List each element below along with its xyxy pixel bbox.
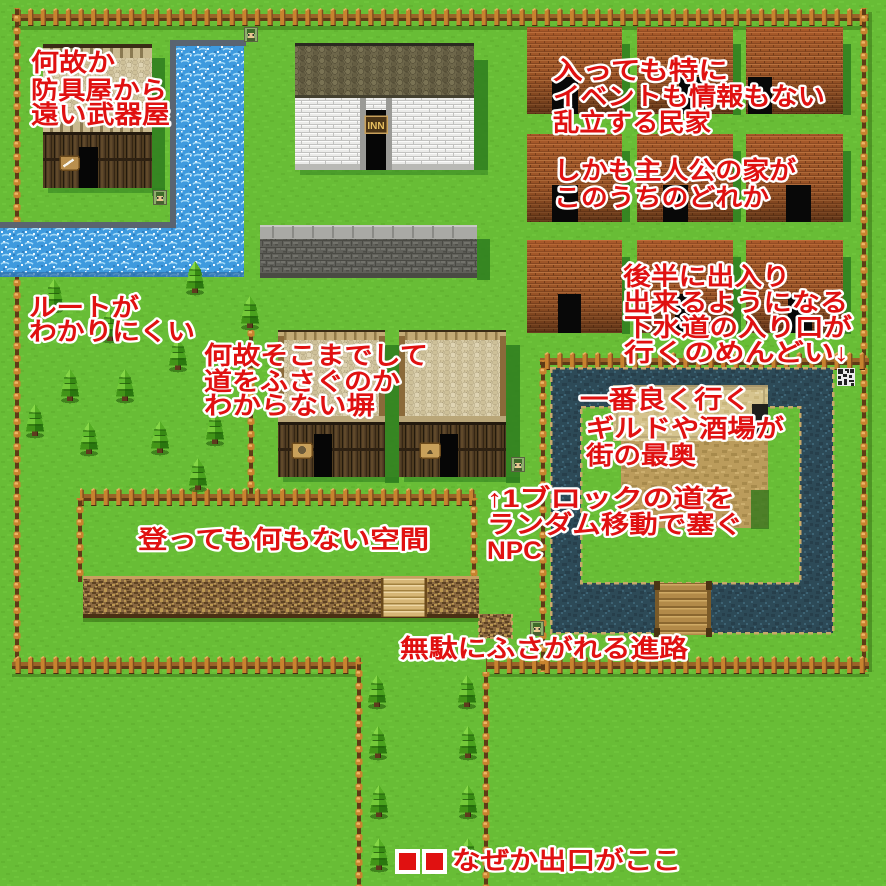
svg-text:このうちのどれか: このうちのどれか [554,184,769,212]
svg-text:遠い武器屋: 遠い武器屋 [31,101,170,129]
svg-text:INN: INN [367,121,384,132]
svg-text:何故か: 何故か [31,49,115,77]
svg-text:無駄にふさがれる進路: 無駄にふさがれる進路 [400,634,689,663]
svg-text:後半に出入り: 後半に出入り [623,263,790,291]
svg-text:しかも主人公の家が: しかも主人公の家が [554,156,796,185]
svg-text:乱立する民家: 乱立する民家 [553,108,711,137]
svg-text:ランダム移動で塞ぐ: ランダム移動で塞ぐ [487,510,743,539]
svg-text:登っても何もない空間: 登っても何もない空間 [137,525,429,554]
svg-text:何故そこまでして: 何故そこまでして [204,342,428,370]
svg-text:下水道の入り口が: 下水道の入り口が [624,313,852,342]
svg-text:イベントも情報もない: イベントも情報もない [553,83,825,111]
svg-text:行くのめんどい↓: 行くのめんどい↓ [623,339,849,367]
svg-text:ギルドや酒場が: ギルドや酒場が [586,414,784,443]
svg-text:なぜか出口がここ: なぜか出口がここ [452,846,681,875]
svg-text:わからない塀: わからない塀 [204,392,375,420]
svg-text:↑1ブロックの道を: ↑1ブロックの道を [487,484,735,513]
svg-text:一番良く行く: 一番良く行く [580,385,751,414]
svg-text:NPC: NPC [487,537,542,565]
svg-text:出来るようになる: 出来るようになる [623,289,848,317]
svg-text:街の最奥: 街の最奥 [585,441,697,470]
svg-text:入っても特に: 入っても特に [553,57,728,85]
svg-text:わかりにくい: わかりにくい [29,318,195,346]
